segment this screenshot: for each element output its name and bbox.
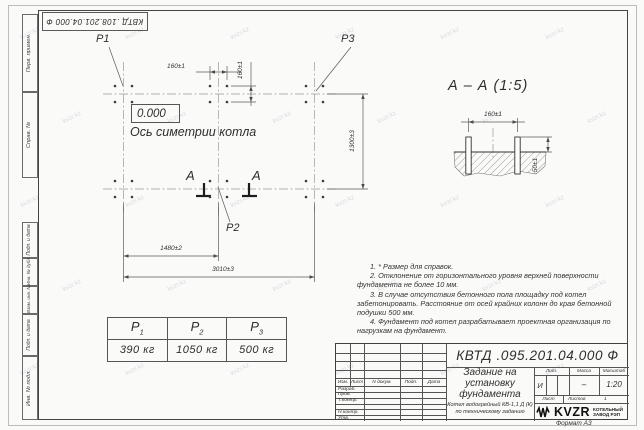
company-logo-text: KVZR [554, 405, 590, 419]
section-dim-50: 50±1 [532, 153, 539, 177]
sheets-label: Листов [568, 397, 585, 402]
section-dim-160: 160±1 [476, 111, 510, 118]
section-letter-right: А [252, 168, 261, 183]
sig-row-prov: Пров. [336, 392, 364, 397]
document-number: КВТД .095.201.04.000 Ф [446, 344, 629, 367]
bolt-position-dots [114, 85, 325, 199]
dim-label-160-top: 160±1 [158, 63, 194, 70]
sig-row-nkontr: Н.контр. [336, 410, 364, 415]
sig-row-utv: Утв. [336, 416, 364, 421]
load-point-label-p3: Р3 [341, 33, 354, 45]
scale-header: Масштаб [599, 369, 629, 374]
loads-header-p3: Р3 [227, 318, 286, 339]
section-cut-marks [196, 183, 257, 196]
sig-row-tkontr: Т.контр. [336, 398, 364, 403]
title-block: КВТД .095.201.04.000 Ф Задание на устано… [335, 343, 628, 420]
note-3: 3. В случае отсутствия бетонного пола пл… [357, 290, 629, 318]
loads-value-p1: 390 кг [108, 340, 168, 362]
loads-value-p2: 1050 кг [168, 340, 228, 362]
format-label: Формат А3 [556, 420, 592, 427]
drawing-subtitle: Котел водогрейный КВ-1,1 Д (К) по технич… [447, 402, 533, 416]
load-point-label-p1: Р1 [96, 33, 109, 45]
loads-table-value-row: 390 кг 1050 кг 500 кг [108, 340, 286, 362]
sheet-label: Лист [534, 397, 563, 402]
loads-header-p1: Р1 [108, 318, 168, 339]
anchor-bolt-left [466, 137, 471, 174]
sig-header-list: Лист [350, 380, 364, 385]
drawing-page: kvzr.kzkvzr.kzkvzr.kzkvzr.kzkvzr.kzkvzr.… [0, 0, 644, 430]
company-logo-area: KVZR КОТЕЛЬНЫЙ ЗАВОД РЭП [534, 403, 629, 421]
company-name: КОТЕЛЬНЫЙ ЗАВОД РЭП [593, 407, 627, 418]
elevation-mark-box: 0.000 [131, 104, 180, 123]
section-view-title: А – А (1:5) [448, 78, 528, 94]
boiler-axis-label: Ось симетрии котла [130, 125, 256, 139]
drawing-content: КВТД .108.201.04.000 Ф Перв. примен. Спр… [0, 0, 644, 430]
load-point-label-p2: Р2 [226, 222, 239, 234]
elevation-value: 0.000 [132, 105, 179, 123]
anchor-bolt-right [515, 137, 520, 174]
lit-header: Лит. [534, 369, 569, 374]
mass-value: – [569, 380, 599, 389]
spring-logo-icon [536, 406, 551, 419]
note-2: 2. Отклонение от горизонтального уровня … [357, 271, 629, 289]
sig-row-razrab: Разраб. [336, 387, 364, 392]
mass-header: Масса [569, 369, 599, 374]
sig-header-data: Дата [422, 380, 446, 385]
sig-header-izm: Изм. [336, 380, 350, 385]
drawing-title: Задание на установку фундамента [447, 368, 533, 400]
note-1: 1. * Размер для справок. [357, 262, 629, 271]
dim-label-160-side: 160±1 [237, 56, 244, 84]
dim-label-3010: 3010±3 [200, 266, 246, 273]
section-letter-left: А [186, 168, 195, 183]
note-4: 4. Фундамент под котел разрабатывает про… [357, 317, 629, 335]
dim-label-1480: 1480±2 [149, 245, 193, 252]
sheets-value: 1 [604, 397, 607, 402]
loads-value-p3: 500 кг [227, 340, 286, 362]
sig-header-ndocum: N докум. [364, 380, 400, 385]
sig-header-podp: Подп. [400, 380, 422, 385]
scale-value: 1:20 [599, 380, 629, 389]
lit-value: И [534, 381, 546, 390]
loads-header-p2: Р2 [168, 318, 228, 339]
notes-block: 1. * Размер для справок. 2. Отклонение о… [357, 262, 629, 336]
loads-table: Р1 Р2 Р3 390 кг 1050 кг 500 кг [107, 317, 287, 362]
dim-label-1300: 1300±3 [349, 124, 356, 158]
loads-table-header-row: Р1 Р2 Р3 [108, 318, 286, 340]
